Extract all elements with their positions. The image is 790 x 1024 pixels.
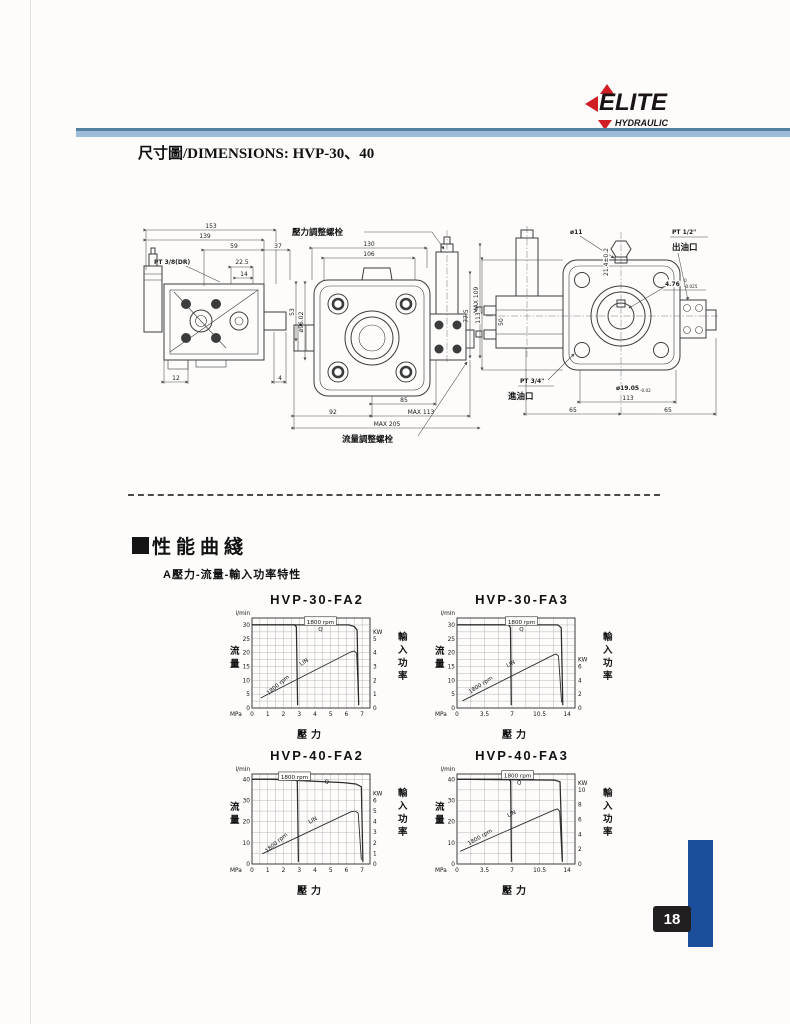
svg-text:入: 入 [397, 801, 408, 812]
chart-hvp-40-fa2: HVP-40-FA2 010203040l/min0123456KW012345… [222, 748, 422, 903]
svg-text:20: 20 [243, 651, 251, 657]
dim-max113: MAX 113 [408, 409, 435, 416]
svg-text:0: 0 [578, 706, 582, 712]
svg-text:30: 30 [448, 623, 456, 629]
svg-text:0: 0 [373, 706, 377, 712]
svg-text:流: 流 [230, 801, 240, 813]
svg-text:1: 1 [373, 692, 377, 698]
svg-text:20: 20 [243, 820, 251, 826]
svg-text:輸: 輸 [398, 787, 408, 799]
svg-text:20: 20 [448, 820, 456, 826]
svg-text:4: 4 [313, 868, 317, 874]
annotation: 1800 rpm [467, 828, 494, 847]
svg-text:量: 量 [435, 814, 445, 826]
svg-text:40: 40 [448, 777, 456, 783]
dim-65-left: 65 [569, 407, 577, 414]
svg-text:7: 7 [360, 712, 364, 718]
svg-text:入: 入 [602, 645, 613, 656]
chart-canvas-hvp-40-fa3: 010203040l/min0246810KW03.5710.514MPa壓力流… [427, 764, 617, 898]
annotation: LIN [308, 816, 319, 826]
svg-text:輸: 輸 [603, 631, 613, 643]
svg-text:14: 14 [563, 712, 571, 718]
dim-113-vertical: 113 [475, 312, 482, 324]
svg-text:3.5: 3.5 [480, 868, 490, 874]
side-accent-bar [688, 840, 713, 947]
axis-ticks: 010203040l/min0123456KW01234567MPa壓力流量輸入… [230, 767, 408, 897]
label-pt38dr: PT 3/8(DR) [154, 259, 190, 266]
page-number-badge: 18 [653, 906, 691, 932]
svg-text:功: 功 [398, 657, 408, 669]
dim-4-76: 4.76 [665, 281, 680, 288]
svg-text:40: 40 [243, 777, 251, 783]
svg-text:率: 率 [603, 826, 613, 838]
dim-106: 106 [363, 251, 375, 258]
svg-text:30: 30 [448, 798, 456, 804]
svg-text:4: 4 [578, 678, 582, 684]
label-pressure-adjust-screw: 壓力調整螺栓 [292, 227, 344, 238]
dim-65-right: 65 [664, 407, 672, 414]
svg-text:3: 3 [297, 868, 301, 874]
dim-4-76-tol-hi: 0 [684, 278, 687, 283]
series-flow-at-min-pressure-setting [457, 625, 511, 705]
svg-text:l/min: l/min [236, 611, 251, 617]
svg-text:l/min: l/min [236, 767, 251, 773]
svg-text:30: 30 [243, 623, 251, 629]
section-marker-icon [132, 537, 149, 554]
elite-logo: ELITE HYDRAULIC [585, 84, 675, 134]
scan-edge-line [30, 0, 31, 1024]
svg-text:10.5: 10.5 [533, 712, 546, 718]
chart-title: HVP-30-FA2 [222, 592, 412, 608]
chart-canvas-hvp-40-fa2: 010203040l/min0123456KW01234567MPa壓力流量輸入… [222, 764, 412, 898]
svg-text:3.5: 3.5 [480, 712, 490, 718]
svg-text:功: 功 [398, 813, 408, 825]
dimension-drawing-side-view: 153 139 59 37 PT 3/8(DR) 22.5 14 53 ø96.… [124, 220, 309, 398]
annotation: 1800 rpm [504, 774, 531, 780]
chart-canvas-hvp-30-fa2: 051015202530l/min012345KW01234567MPa壓力流量… [222, 608, 412, 742]
axis-ticks: 051015202530l/min0246KW03.5710.514MPa壓力流… [435, 611, 613, 741]
svg-text:15: 15 [448, 664, 456, 670]
svg-text:入: 入 [602, 801, 613, 812]
d1-pump-body-art [144, 248, 286, 369]
series-flow-at-max-pressure-setting [457, 779, 562, 862]
dim-4-76-tol-lo: -0.025 [684, 284, 698, 289]
svg-text:5: 5 [373, 637, 377, 643]
svg-text:5: 5 [246, 692, 250, 698]
svg-text:MPa: MPa [435, 868, 447, 874]
svg-text:MPa: MPa [230, 868, 242, 874]
svg-text:量: 量 [230, 814, 240, 826]
svg-text:功: 功 [603, 813, 613, 825]
section-heading: 性能曲綫 [132, 532, 248, 559]
svg-text:5: 5 [329, 868, 333, 874]
svg-text:率: 率 [603, 670, 613, 682]
annotation: 1800 rpm [307, 620, 334, 626]
svg-text:壓力: 壓力 [297, 884, 325, 897]
dim-139: 139 [199, 233, 211, 240]
page-number: 18 [664, 911, 681, 928]
svg-text:0: 0 [578, 862, 582, 868]
svg-text:2: 2 [578, 847, 582, 853]
svg-text:功: 功 [603, 657, 613, 669]
svg-text:2: 2 [373, 841, 377, 847]
dim-12: 12 [172, 375, 180, 382]
dim-85: 85 [400, 397, 408, 404]
dim-153: 153 [205, 223, 217, 230]
annotation: Q [517, 780, 522, 786]
svg-text:1: 1 [266, 868, 270, 874]
catalog-page: ELITE HYDRAULIC 尺寸圖/DIMENSIONS: HVP-30、4… [0, 0, 790, 1024]
svg-text:6: 6 [578, 664, 582, 670]
d2-pump-body-art [294, 230, 474, 396]
label-outlet-port: 出油口 [672, 242, 698, 253]
svg-text:0: 0 [455, 712, 459, 718]
svg-text:6: 6 [345, 868, 349, 874]
label-pt34: PT 3/4" [520, 378, 544, 385]
chart-hvp-40-fa3: HVP-40-FA3 010203040l/min0246810KW03.571… [427, 748, 627, 903]
svg-text:5: 5 [451, 692, 455, 698]
dim-max205: MAX 205 [374, 421, 401, 428]
dim-59: 59 [230, 243, 238, 250]
chart-hvp-30-fa3: HVP-30-FA3 051015202530l/min0246KW03.571… [427, 592, 627, 747]
svg-text:KW: KW [373, 630, 383, 636]
svg-text:KW: KW [373, 791, 383, 797]
svg-text:6: 6 [345, 712, 349, 718]
chart-canvas-hvp-30-fa3: 051015202530l/min0246KW03.5710.514MPa壓力流… [427, 608, 617, 742]
logo-brand-text: ELITE [599, 90, 667, 116]
svg-text:率: 率 [398, 670, 408, 682]
svg-text:5: 5 [329, 712, 333, 718]
svg-text:壓力: 壓力 [502, 884, 530, 897]
svg-text:3: 3 [373, 664, 377, 670]
svg-text:25: 25 [243, 637, 251, 643]
chart-title: HVP-40-FA3 [427, 748, 617, 764]
dim-92: 92 [329, 409, 337, 416]
annotation: 1800 rpm [468, 675, 494, 695]
dim-phi19-05: ø19.05 [616, 385, 639, 392]
svg-text:10: 10 [448, 678, 456, 684]
svg-text:25: 25 [448, 637, 456, 643]
svg-text:輸: 輸 [398, 631, 408, 643]
svg-text:5: 5 [373, 809, 377, 815]
annotation: Q [318, 627, 323, 633]
svg-text:輸: 輸 [603, 787, 613, 799]
svg-text:4: 4 [373, 820, 377, 826]
dim-22-5: 22.5 [235, 259, 249, 266]
chart-grid [457, 774, 575, 864]
section-subtitle: A壓力-流量-輸入功率特性 [163, 566, 301, 582]
svg-text:7: 7 [510, 868, 514, 874]
dimension-drawing-front-view: 壓力調整螺栓 130 106 77.5 MAX 109 85 92 MAX 11… [284, 222, 484, 444]
dim-14: 14 [240, 271, 248, 278]
dimension-drawing-rear-view: ø11 21.4±0.2 PT 1/2" 出油口 4.76 0 -0.025 5… [468, 222, 723, 422]
svg-text:14: 14 [563, 868, 571, 874]
svg-text:2: 2 [282, 868, 286, 874]
svg-text:MPa: MPa [230, 712, 242, 718]
svg-text:0: 0 [250, 712, 254, 718]
chart-title: HVP-30-FA3 [427, 592, 617, 608]
svg-text:10: 10 [243, 841, 251, 847]
svg-text:量: 量 [435, 658, 445, 670]
dim-130: 130 [363, 241, 375, 248]
svg-text:1: 1 [373, 851, 377, 857]
svg-text:壓力: 壓力 [502, 728, 530, 741]
svg-text:4: 4 [578, 832, 582, 838]
label-flow-adjust-screw: 流量調整螺栓 [342, 434, 394, 445]
logo-left-triangle-icon [585, 96, 598, 112]
annotation: 1800 rpm [508, 620, 535, 626]
svg-text:KW: KW [578, 781, 588, 787]
svg-text:8: 8 [578, 803, 582, 809]
annotation: 1800 rpm [264, 832, 289, 854]
annotation: LIN [299, 658, 310, 668]
series-flow-at-min-pressure-setting [252, 625, 298, 705]
svg-text:4: 4 [373, 651, 377, 657]
svg-text:l/min: l/min [441, 611, 456, 617]
header-rule [76, 128, 790, 137]
svg-text:15: 15 [243, 664, 251, 670]
annotation: 1800 rpm [266, 674, 291, 696]
svg-text:6: 6 [373, 798, 377, 804]
chart-hvp-30-fa2: HVP-30-FA2 051015202530l/min012345KW0123… [222, 592, 422, 747]
svg-text:7: 7 [360, 868, 364, 874]
svg-text:入: 入 [397, 645, 408, 656]
dim-phi11: ø11 [570, 229, 582, 236]
svg-text:1: 1 [266, 712, 270, 718]
plot-frame [457, 774, 575, 864]
svg-text:流: 流 [230, 645, 240, 657]
svg-text:MPa: MPa [435, 712, 447, 718]
svg-text:30: 30 [243, 798, 251, 804]
page-title: 尺寸圖/DIMENSIONS: HVP-30、40 [138, 142, 374, 163]
svg-text:量: 量 [230, 658, 240, 670]
svg-text:流: 流 [435, 645, 445, 657]
svg-text:3: 3 [297, 712, 301, 718]
svg-text:10: 10 [578, 788, 586, 794]
logo-sub-text: HYDRAULIC [615, 118, 668, 128]
annotation: Q [519, 627, 524, 633]
svg-text:率: 率 [398, 826, 408, 838]
svg-text:20: 20 [448, 651, 456, 657]
svg-text:2: 2 [373, 678, 377, 684]
svg-text:2: 2 [578, 692, 582, 698]
dim-21-4: 21.4±0.2 [603, 248, 610, 276]
series-input-power-1800rpm [261, 651, 359, 703]
svg-text:6: 6 [578, 818, 582, 824]
label-pt12: PT 1/2" [672, 229, 696, 236]
chart-title: HVP-40-FA2 [222, 748, 412, 764]
svg-text:0: 0 [455, 868, 459, 874]
svg-text:3: 3 [373, 830, 377, 836]
svg-text:10.5: 10.5 [533, 868, 546, 874]
svg-text:0: 0 [373, 862, 377, 868]
annotation: LIN [506, 660, 517, 670]
svg-text:流: 流 [435, 801, 445, 813]
svg-text:0: 0 [250, 868, 254, 874]
dim-37: 37 [274, 243, 282, 250]
annotation: Q [325, 780, 330, 786]
section-heading-text: 性能曲綫 [152, 532, 248, 559]
dashed-separator [128, 494, 660, 496]
dim-50: 50 [498, 318, 505, 326]
axis-ticks: 010203040l/min0246810KW03.5710.514MPa壓力流… [435, 767, 613, 897]
svg-text:7: 7 [510, 712, 514, 718]
svg-text:10: 10 [448, 841, 456, 847]
annotation: 1800 rpm [281, 775, 308, 781]
svg-text:壓力: 壓力 [297, 728, 325, 741]
label-inlet-port: 進油口 [508, 391, 534, 402]
dim-4: 4 [278, 375, 282, 382]
svg-text:KW: KW [578, 657, 588, 663]
dim-113-bottom: 113 [622, 395, 634, 402]
svg-text:l/min: l/min [441, 767, 456, 773]
dim-phi19-05-tol: -0.02 [640, 388, 651, 393]
svg-text:4: 4 [313, 712, 317, 718]
svg-text:2: 2 [282, 712, 286, 718]
svg-text:10: 10 [243, 678, 251, 684]
